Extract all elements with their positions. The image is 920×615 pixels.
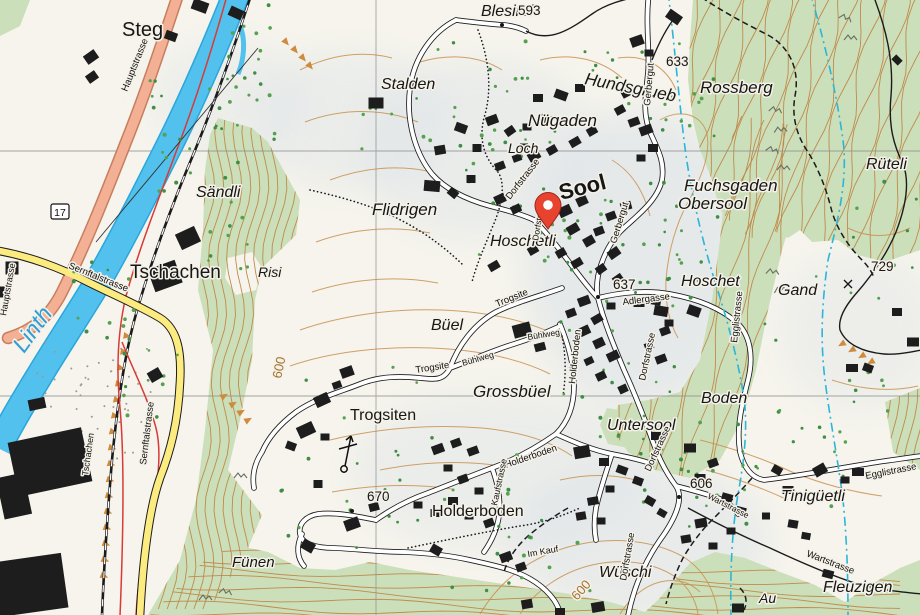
place-label: Tinigüetli xyxy=(781,488,845,505)
building xyxy=(555,608,565,615)
place-label: Nügaden xyxy=(528,111,597,130)
building xyxy=(599,458,609,466)
building xyxy=(597,518,606,525)
building xyxy=(473,144,482,152)
place-label: Gand xyxy=(778,282,818,299)
place-label: Hoschet xyxy=(681,273,740,290)
building xyxy=(709,543,718,550)
building xyxy=(607,303,616,310)
building xyxy=(0,553,68,615)
building xyxy=(648,144,658,152)
spot-height-label: 606 xyxy=(690,476,713,491)
building xyxy=(606,486,615,493)
building xyxy=(424,180,441,192)
building xyxy=(369,98,384,109)
place-label: Hoschetli xyxy=(490,233,556,250)
building xyxy=(684,444,696,453)
building xyxy=(321,434,330,441)
spot-height-label: 729 xyxy=(871,259,894,274)
building xyxy=(892,308,902,316)
map-viewport[interactable]: StegSändliTschachenRisiFlidrigenStaldenB… xyxy=(0,0,920,615)
building xyxy=(314,480,323,488)
building xyxy=(414,502,423,509)
building xyxy=(907,338,919,347)
spot-height-label: 670 xyxy=(367,489,390,504)
building xyxy=(680,534,691,544)
place-label: Trogsiten xyxy=(350,407,416,424)
building xyxy=(665,320,674,327)
place-label: Rüteli xyxy=(866,156,907,173)
building xyxy=(637,155,646,162)
spot-height-label: 593 xyxy=(518,3,541,18)
building xyxy=(521,599,533,610)
route-shield-number: 17 xyxy=(54,207,66,219)
building xyxy=(846,364,858,372)
route-shield: 17 xyxy=(51,204,69,219)
building xyxy=(475,488,484,495)
topographic-map[interactable]: StegSändliTschachenRisiFlidrigenStaldenB… xyxy=(0,0,920,615)
place-label: Rossberg xyxy=(700,78,773,97)
place-label: Fünen xyxy=(232,554,275,571)
spot-height-label: 633 xyxy=(666,54,689,69)
place-label: Flidrigen xyxy=(372,200,437,219)
building xyxy=(575,511,586,521)
building xyxy=(533,94,543,102)
place-label: Au xyxy=(758,590,776,606)
building xyxy=(841,477,850,484)
place-label: Tschachen xyxy=(130,262,221,283)
place-label: Sändli xyxy=(196,184,241,201)
place-label: Boden xyxy=(701,390,747,407)
building xyxy=(762,513,770,520)
building xyxy=(434,145,446,156)
spot-height-label: 637 xyxy=(613,277,636,292)
place-label: Fleuzigen xyxy=(823,579,892,596)
building xyxy=(444,465,453,472)
building xyxy=(787,519,798,529)
place-label: Loch xyxy=(508,140,539,156)
building xyxy=(732,604,744,613)
place-label: Stalden xyxy=(381,76,435,93)
place-label: Steg xyxy=(122,19,163,41)
place-label: Grossbüel xyxy=(473,382,552,401)
building xyxy=(645,50,654,57)
building xyxy=(467,175,476,183)
place-label: Fuchsgaden xyxy=(684,176,778,195)
place-label: Risi xyxy=(258,264,282,280)
place-label: Büel xyxy=(431,317,463,334)
place-label: Holderboden xyxy=(432,503,524,520)
building xyxy=(852,468,864,476)
building xyxy=(727,528,736,535)
place-label: Obersool xyxy=(678,194,748,213)
